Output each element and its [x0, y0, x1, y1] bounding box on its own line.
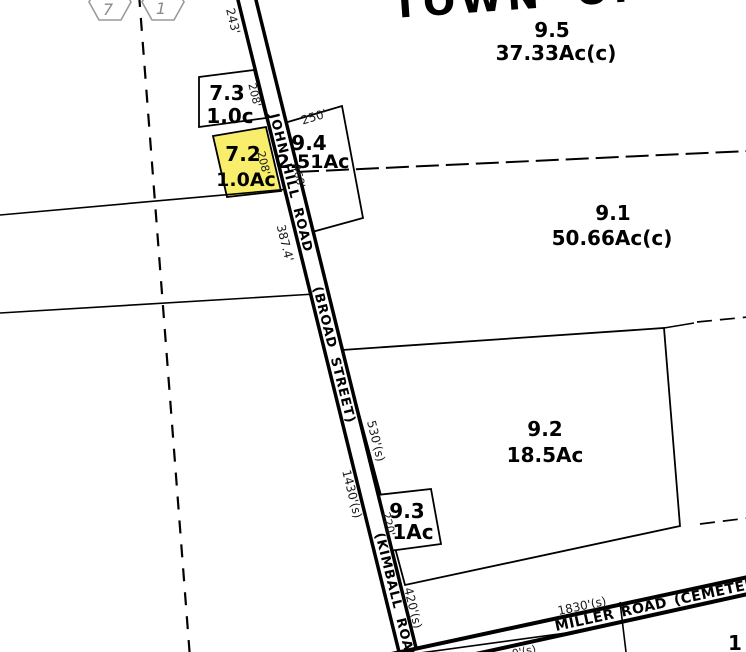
parcel-partial-bottom-right-id: 1 [728, 631, 742, 652]
parcel-9-2-id: 9.2 [527, 417, 562, 441]
parcel-9-1-id: 9.1 [595, 201, 630, 225]
parcel-7-3-area: 1.0c [206, 104, 253, 128]
parcel-9-2-area: 18.5Ac [507, 443, 584, 467]
parcel-map: 7 1 TOWN OF M 9.5 37.33Ac(c) 7.3 1.0c 9.… [0, 0, 746, 652]
parcel-7-3-id: 7.3 [209, 81, 244, 105]
parcel-9-1-area: 50.66Ac(c) [552, 226, 673, 250]
parcel-9-5-id: 9.5 [534, 18, 569, 42]
parcel-9-3-area: 1Ac [392, 520, 433, 544]
index-hexagon-7-label: 7 [103, 0, 114, 19]
index-hexagon-1-label: 1 [156, 0, 166, 18]
map-background [0, 0, 746, 652]
parcel-9-5-area: 37.33Ac(c) [496, 41, 617, 65]
